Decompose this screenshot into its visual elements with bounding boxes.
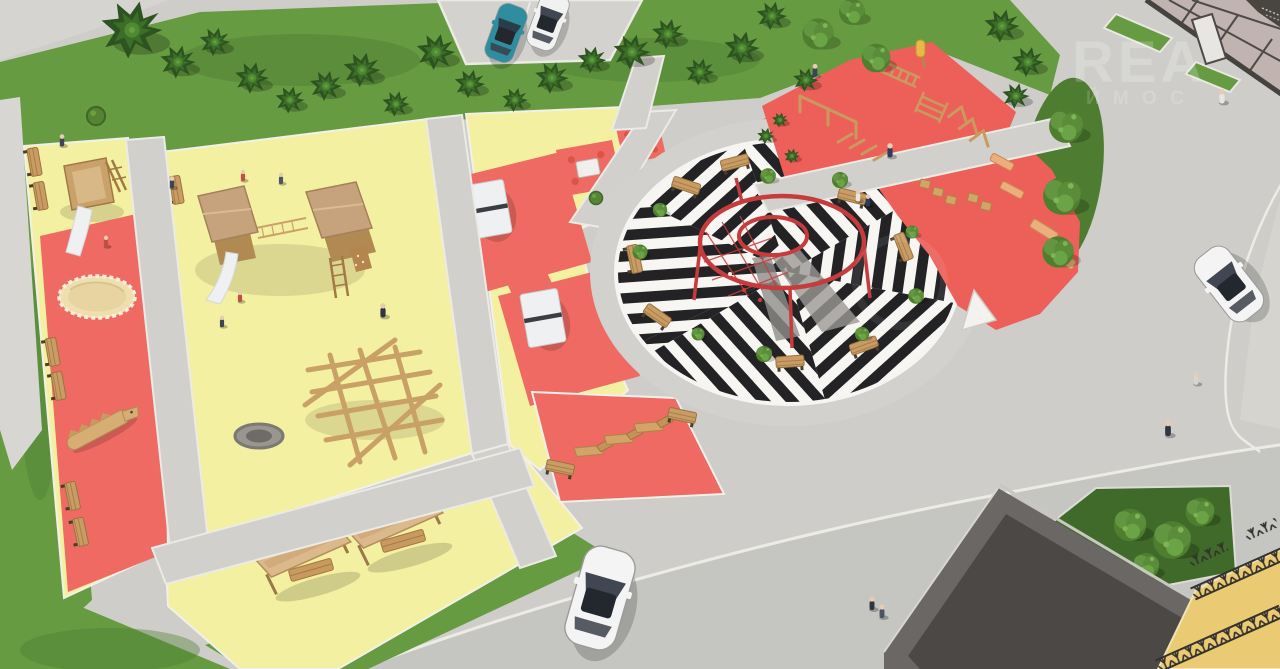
render-canvas: REA Й М О С (0, 0, 1280, 669)
sandbox (59, 276, 135, 318)
shrub (590, 192, 603, 205)
rubber-circle (235, 424, 283, 448)
aerial-playground-render: REA Й М О С (0, 0, 1280, 669)
shrub (87, 107, 105, 125)
watermark-brand: REA (1072, 30, 1206, 95)
watermark-subline: Й М О С (1086, 87, 1188, 109)
